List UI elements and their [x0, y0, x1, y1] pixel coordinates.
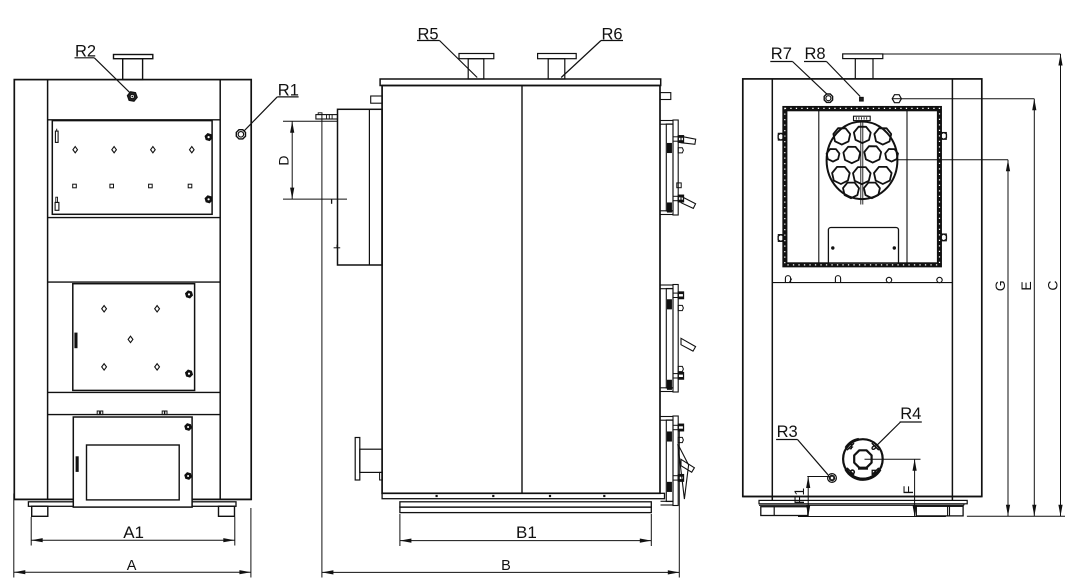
svg-text:C: C: [1045, 280, 1061, 290]
svg-text:R3: R3: [777, 423, 798, 441]
svg-text:D: D: [276, 156, 292, 166]
svg-text:B: B: [501, 558, 511, 574]
svg-text:A: A: [127, 558, 137, 574]
svg-text:F1: F1: [791, 488, 807, 505]
svg-text:E: E: [1018, 281, 1034, 290]
svg-text:R7: R7: [771, 45, 792, 63]
svg-text:B1: B1: [516, 523, 537, 542]
svg-text:R8: R8: [805, 45, 826, 63]
svg-text:A1: A1: [123, 523, 144, 542]
svg-text:R4: R4: [900, 405, 921, 423]
svg-text:G: G: [992, 280, 1008, 291]
svg-text:F: F: [900, 486, 916, 495]
